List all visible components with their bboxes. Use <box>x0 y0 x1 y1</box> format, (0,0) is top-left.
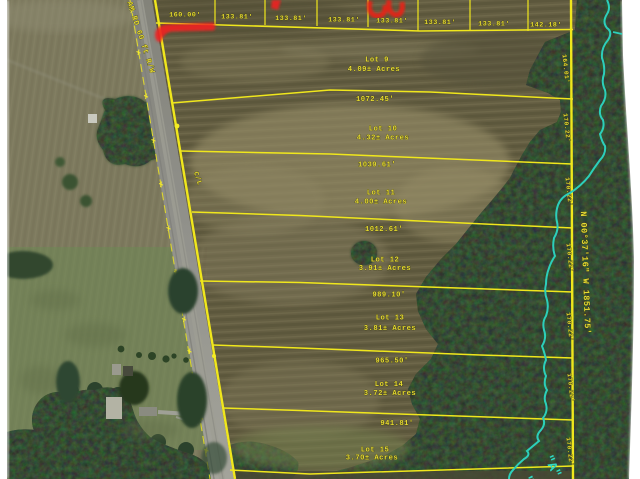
svg-text:965.50': 965.50' <box>375 358 408 366</box>
svg-text:4.32± Acres: 4.32± Acres <box>357 135 409 143</box>
svg-text:133.81': 133.81' <box>221 14 253 22</box>
svg-text:160.00': 160.00' <box>169 12 201 20</box>
svg-text:941.81': 941.81' <box>380 420 413 428</box>
svg-text:Lot 12: Lot 12 <box>371 257 400 265</box>
svg-text:3.70± Acres: 3.70± Acres <box>346 455 398 463</box>
svg-text:1012.61': 1012.61' <box>365 226 403 234</box>
svg-text:133.81': 133.81' <box>376 18 408 26</box>
svg-text:133.81': 133.81' <box>424 19 456 27</box>
svg-text:Lot 9: Lot 9 <box>365 57 389 65</box>
svg-text:Lot 10: Lot 10 <box>369 126 398 134</box>
svg-text:3.81± Acres: 3.81± Acres <box>364 325 416 333</box>
svg-text:1072.45': 1072.45' <box>356 96 394 104</box>
svg-text:Lot 13: Lot 13 <box>376 315 405 323</box>
svg-text:142.18': 142.18' <box>530 22 562 30</box>
svg-text:3.72± Acres: 3.72± Acres <box>364 390 416 398</box>
svg-text:133.81': 133.81' <box>478 21 510 29</box>
svg-text:4.00± Acres: 4.00± Acres <box>355 199 407 207</box>
svg-text:133.81': 133.81' <box>328 17 360 25</box>
svg-text:Lot 11: Lot 11 <box>367 190 396 198</box>
svg-text:3.91± Acres: 3.91± Acres <box>359 265 411 273</box>
svg-text:133.81': 133.81' <box>275 15 307 23</box>
svg-text:4.09± Acres: 4.09± Acres <box>348 66 400 74</box>
svg-text:1039.61': 1039.61' <box>358 162 396 170</box>
svg-text:Lot 14: Lot 14 <box>375 381 404 389</box>
svg-text:989.10': 989.10' <box>372 292 405 300</box>
svg-text:Lot 15: Lot 15 <box>361 447 390 455</box>
